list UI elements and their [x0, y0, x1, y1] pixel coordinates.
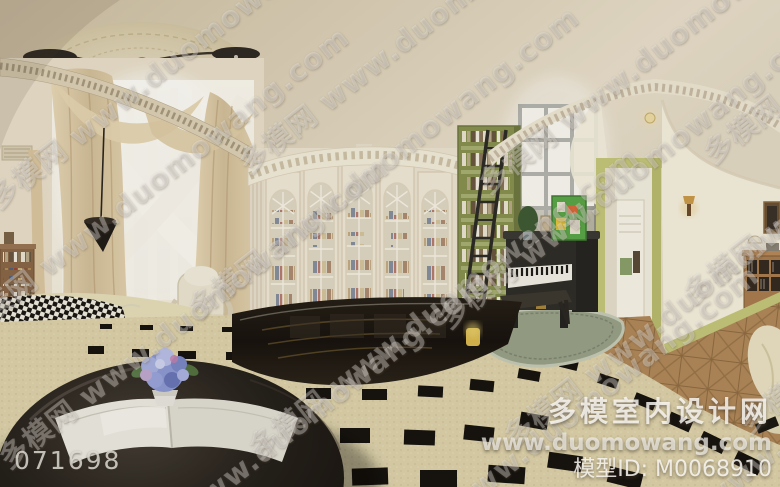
panorama-viewport[interactable]: 多模网 www.duomowang.com多模网 www.duomowang.c… [0, 0, 780, 487]
model-id-watermark: 模型ID: M0068910 [481, 458, 772, 481]
brand-name-watermark: 多模室内设计网 [481, 397, 772, 426]
brand-url-watermark: www.duomowang.com [481, 431, 772, 455]
brand-watermark: 多模室内设计网 www.duomowang.com 模型ID: M0068910 [481, 397, 772, 481]
photo-id-watermark: 071698 [14, 446, 121, 475]
